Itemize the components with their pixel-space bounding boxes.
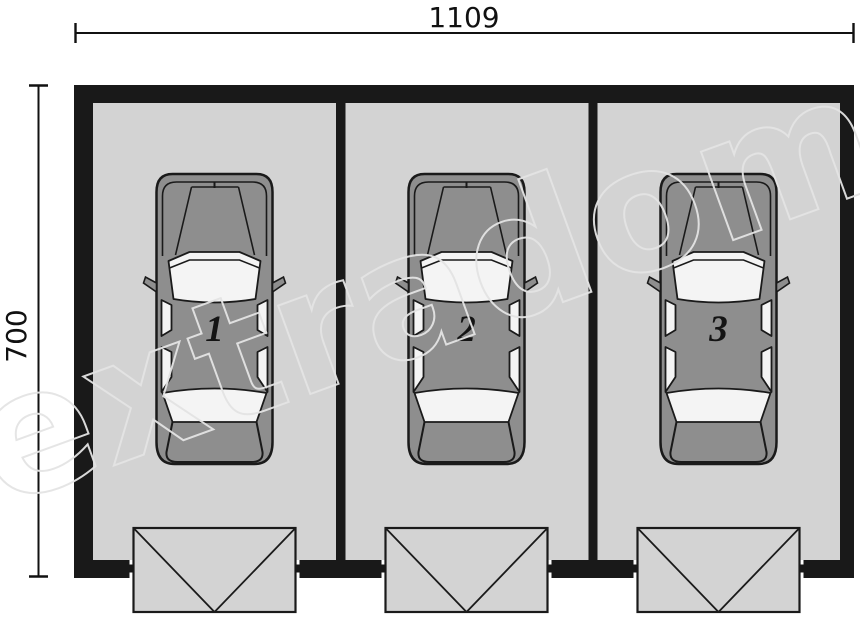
- garage-floor-plan: 1 2 3 1109 700 extradom: [0, 0, 860, 620]
- door-3-right-jamb: [800, 565, 808, 573]
- garage-door-1: [134, 528, 296, 612]
- garage-door-3: [638, 528, 800, 612]
- top-dimension: 1109: [76, 1, 854, 43]
- garage-door-2: [386, 528, 548, 612]
- door-1-right-jamb: [296, 565, 304, 573]
- bay-3-number: 3: [708, 309, 728, 350]
- width-dimension-label: 1109: [428, 1, 499, 34]
- door-2-right-jamb: [548, 565, 556, 573]
